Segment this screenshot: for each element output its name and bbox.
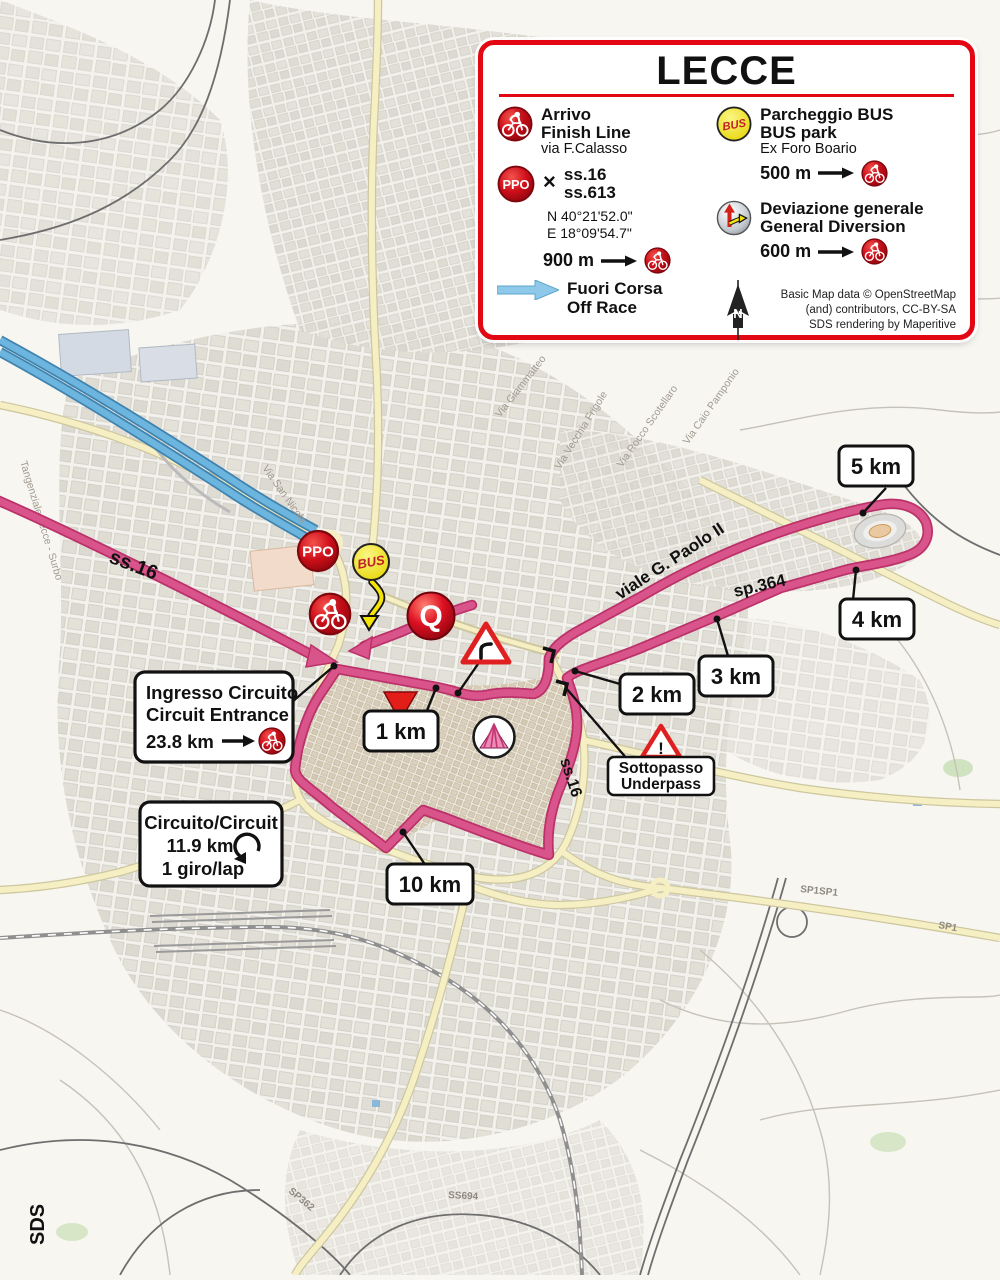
offrace-label-it: Fuori Corsa bbox=[567, 280, 662, 298]
underpass-line1: Sottopasso bbox=[619, 760, 703, 777]
legend-divider bbox=[499, 94, 954, 97]
km2-label: 2 km bbox=[620, 674, 694, 714]
circuit-info-line3: 1 giro/lap bbox=[162, 858, 244, 879]
tent-marker-icon bbox=[474, 717, 515, 758]
legend-row-finish: Arrivo Finish Line via F.Calasso bbox=[497, 106, 708, 158]
buspark-label-en: BUS park bbox=[760, 124, 893, 142]
circuit-info-line1: Circuito/Circuit bbox=[144, 812, 278, 833]
ppo-marker-label: PPO bbox=[302, 544, 334, 561]
offrace-label-en: Off Race bbox=[567, 299, 662, 317]
q-marker: Q bbox=[408, 593, 455, 640]
ppo-distance-row: 900 m bbox=[543, 247, 708, 274]
finish-street: via F.Calasso bbox=[541, 142, 631, 158]
km10-label: 10 km bbox=[387, 864, 473, 904]
attribution-line3: SDS rendering by Maperitive bbox=[764, 318, 956, 333]
arrow-right-icon bbox=[601, 255, 637, 267]
circuit-info-box: Circuito/Circuit 11.9 km 1 giro/lap bbox=[140, 802, 282, 886]
diversion-icon bbox=[716, 200, 752, 236]
road-ref-label: SS694 bbox=[448, 1190, 479, 1203]
diversion-distance-row: 600 m bbox=[760, 238, 923, 265]
finish-marker bbox=[310, 594, 350, 634]
km5-label: 5 km bbox=[839, 446, 913, 486]
attribution-line1: Basic Map data © OpenStreetMap bbox=[764, 288, 956, 303]
diversion-label-it: Deviazione generale bbox=[760, 200, 923, 218]
circuit-entrance-distance: 23.8 km bbox=[146, 731, 214, 752]
map-attribution: Basic Map data © OpenStreetMap (and) con… bbox=[764, 278, 956, 333]
buspark-distance: 500 m bbox=[760, 164, 811, 183]
km1-label: 1 km bbox=[364, 711, 438, 751]
ppo-longitude: E 18°09'54.7" bbox=[547, 225, 708, 242]
finish-cyclist-icon bbox=[861, 238, 888, 265]
svg-text:5 km: 5 km bbox=[851, 454, 901, 479]
ppo-icon: PPO bbox=[497, 165, 535, 203]
lecce-race-map: Via Vecchia Frigole Via Rocco Scotellaro… bbox=[0, 0, 1000, 1275]
cross-icon: × bbox=[543, 165, 556, 199]
svg-text:!: ! bbox=[658, 739, 664, 758]
ppo-icon-label: PPO bbox=[502, 177, 529, 192]
legend-row-diversion: Deviazione generale General Diversion 60… bbox=[716, 200, 956, 271]
circuit-entrance-line1: Ingresso Circuito bbox=[146, 682, 298, 703]
svg-text:1 km: 1 km bbox=[376, 719, 426, 744]
km3-label: 3 km bbox=[699, 656, 773, 696]
circuit-info-distance: 11.9 km bbox=[167, 835, 234, 856]
ppo-marker: PPO bbox=[298, 531, 338, 571]
legend-row-offrace: Fuori Corsa Off Race bbox=[497, 280, 708, 316]
bus-park-icon: BUS bbox=[716, 106, 752, 142]
ppo-distance: 900 m bbox=[543, 250, 594, 271]
diversion-label-en: General Diversion bbox=[760, 218, 923, 236]
svg-text:4 km: 4 km bbox=[852, 607, 902, 632]
compass-n-label: N bbox=[733, 306, 742, 321]
ppo-latitude: N 40°21'52.0" bbox=[547, 208, 708, 225]
q-marker-label: Q bbox=[419, 600, 442, 633]
finish-cyclist-icon bbox=[861, 160, 888, 187]
buspark-location: Ex Foro Boario bbox=[760, 142, 893, 158]
attribution-line2: (and) contributors, CC-BY-SA bbox=[764, 303, 956, 318]
finish-label-it: Arrivo bbox=[541, 106, 631, 124]
svg-text:10 km: 10 km bbox=[399, 872, 461, 897]
km4-label: 4 km bbox=[840, 599, 914, 639]
legend-title: LECCE bbox=[497, 49, 956, 93]
buspark-label-it: Parcheggio BUS bbox=[760, 106, 893, 124]
buspark-distance-row: 500 m bbox=[760, 160, 893, 187]
legend-row-buspark: BUS Parcheggio BUS BUS park Ex Foro Boar… bbox=[716, 106, 956, 193]
ppo-coordinates: N 40°21'52.0" E 18°09'54.7" bbox=[547, 208, 708, 242]
finish-cyclist-icon bbox=[497, 106, 533, 142]
underpass-box: Sottopasso Underpass bbox=[608, 757, 714, 795]
bus-marker: BUS bbox=[353, 544, 389, 580]
ppo-road1: ss.16 bbox=[564, 166, 616, 184]
sds-watermark: SDS bbox=[27, 1204, 49, 1245]
finish-label-en: Finish Line bbox=[541, 124, 631, 142]
arrow-right-icon bbox=[818, 167, 854, 179]
circuit-entrance-line2: Circuit Entrance bbox=[146, 704, 289, 725]
svg-text:2 km: 2 km bbox=[632, 682, 682, 707]
finish-cyclist-icon bbox=[644, 247, 671, 274]
legend-row-credits: N Basic Map data © OpenStreetMap (and) c… bbox=[716, 278, 956, 344]
legend-row-ppo: PPO × ss.16 ss.613 bbox=[497, 165, 708, 203]
finish-cyclist-icon bbox=[259, 728, 285, 754]
diversion-distance: 600 m bbox=[760, 242, 811, 261]
circuit-entrance-box: Ingresso Circuito Circuit Entrance 23.8 … bbox=[135, 672, 298, 762]
legend-panel: LECCE Arrivo Finish Line via F.Calasso P… bbox=[478, 40, 975, 340]
ppo-road2: ss.613 bbox=[564, 184, 616, 202]
underpass-line2: Underpass bbox=[621, 776, 701, 793]
compass-north-icon: N bbox=[716, 278, 760, 344]
off-race-arrow-icon bbox=[497, 280, 559, 300]
arrow-right-icon bbox=[818, 246, 854, 258]
svg-text:3 km: 3 km bbox=[711, 664, 761, 689]
